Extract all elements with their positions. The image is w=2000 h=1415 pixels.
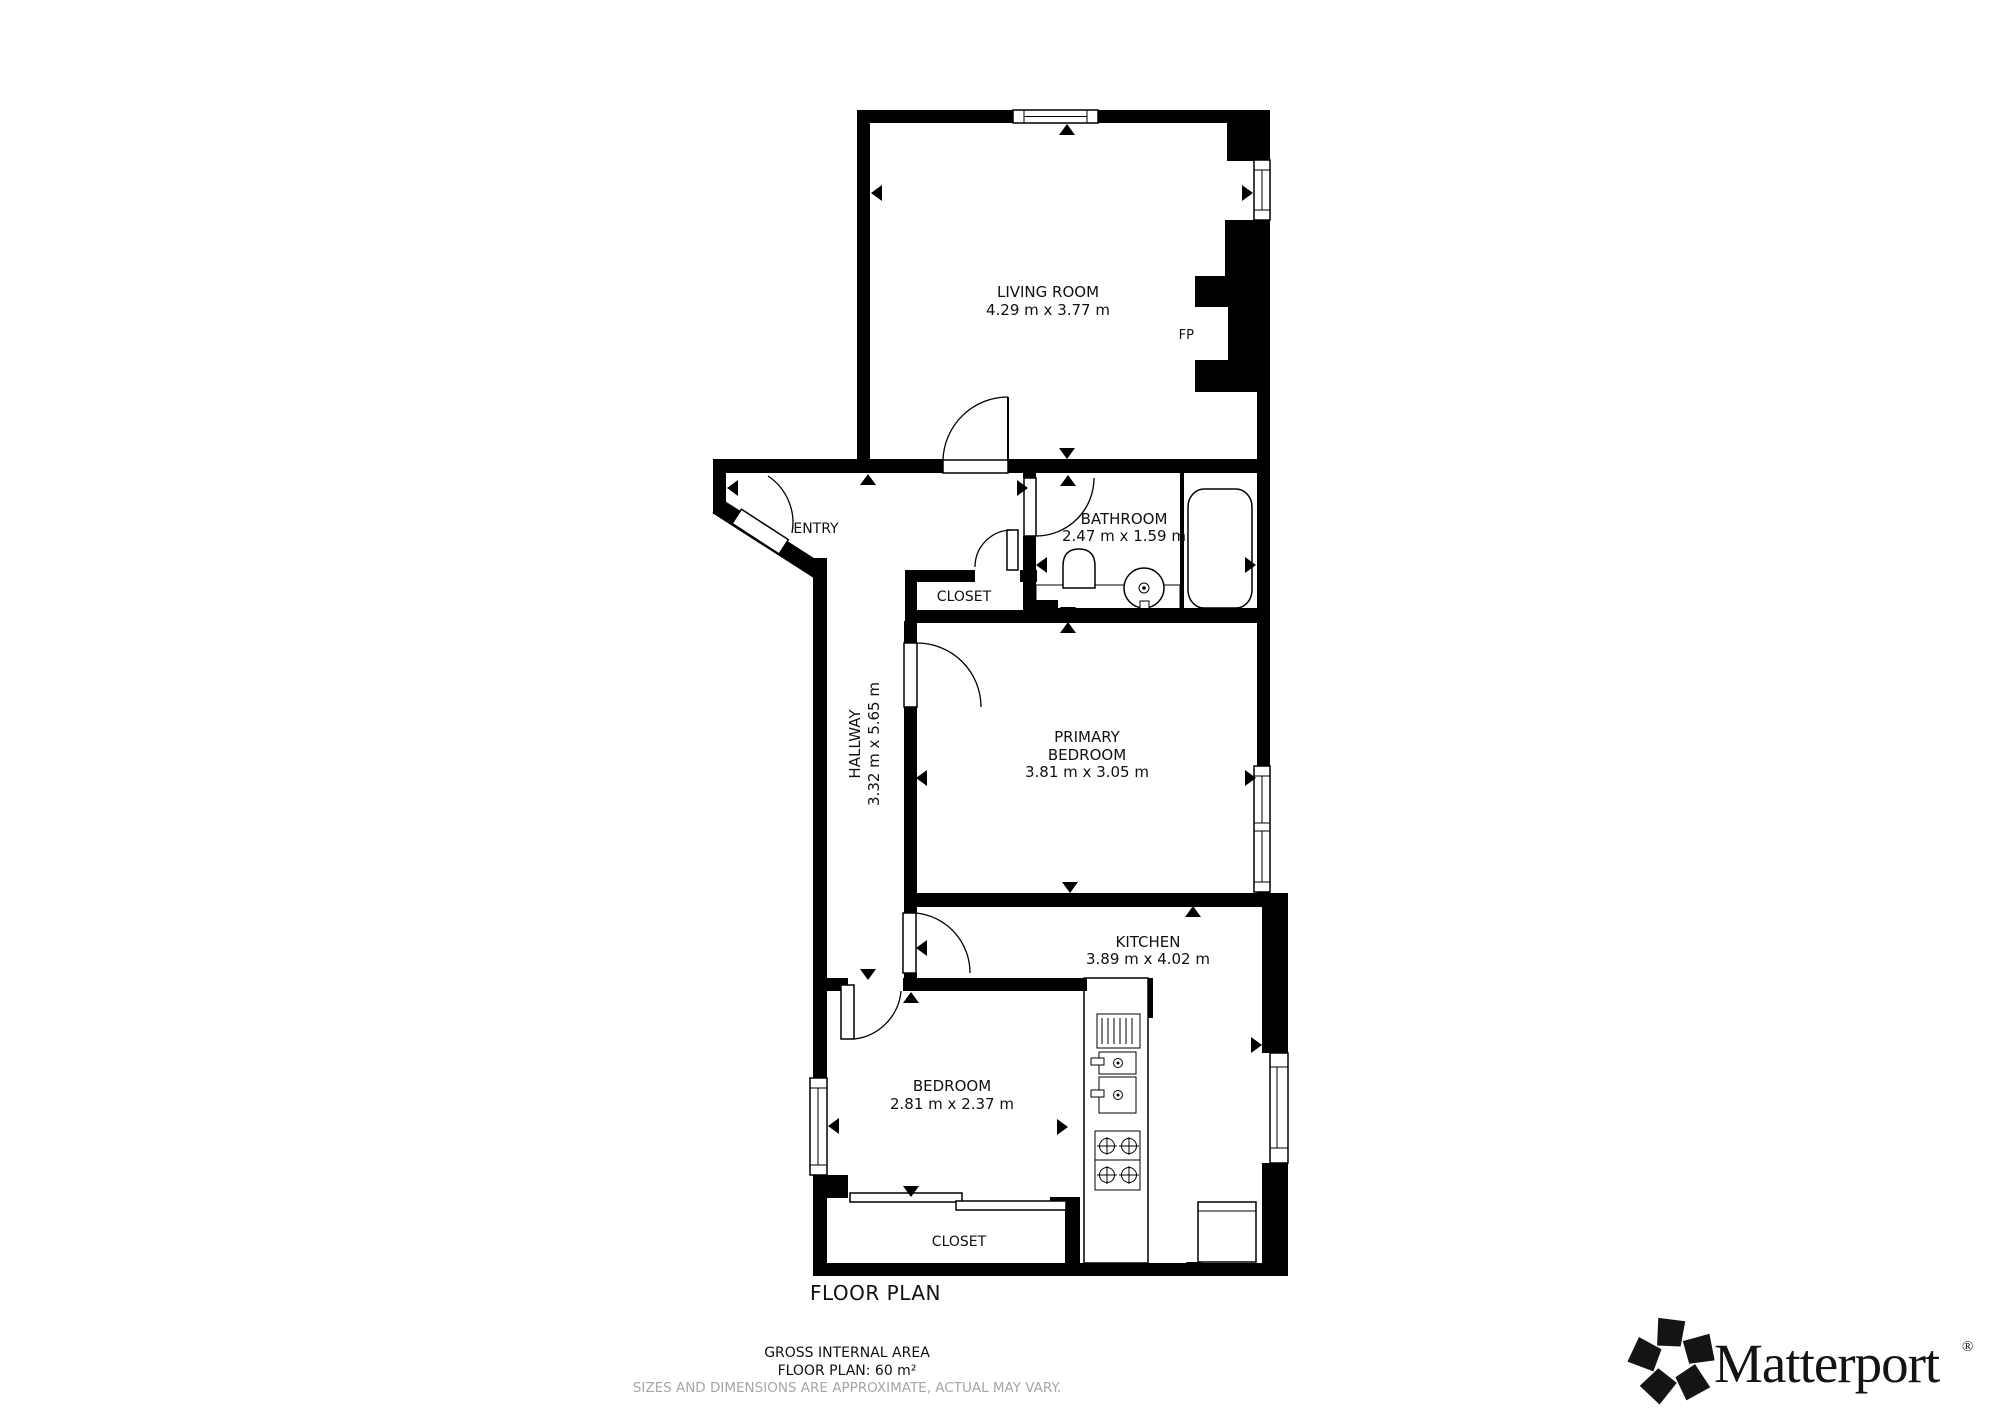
bathroom-dimensions: 2.47 m x 1.59 m: [1062, 527, 1186, 545]
wall: [1023, 459, 1036, 478]
dimension-arrow: [1059, 448, 1075, 459]
closet-lower-label: CLOSET: [932, 1234, 987, 1250]
dimension-arrow: [1036, 557, 1047, 573]
kitchen-drain-dot-lower: [1117, 1094, 1120, 1097]
living-room-door: [943, 397, 1008, 473]
dimension-arrow: [860, 474, 876, 485]
bedroom-door: [841, 985, 901, 1039]
kitchen-faucet-lower: [1091, 1090, 1104, 1097]
sink-drain-dot: [1142, 586, 1146, 590]
wall: [1262, 907, 1288, 1053]
wall: [1148, 978, 1153, 1018]
wall: [1262, 1163, 1288, 1276]
bedroom-window: [810, 1078, 827, 1175]
kitchen-dimensions: 3.89 m x 4.02 m: [1086, 950, 1210, 968]
wall: [1225, 220, 1270, 276]
wall: [904, 707, 917, 913]
dimension-arrow: [916, 770, 927, 786]
toilet: [1063, 549, 1095, 588]
dimension-arrow: [871, 185, 882, 201]
dimension-arrow: [1185, 906, 1201, 917]
wall: [813, 1263, 1288, 1276]
closet-upper-label: CLOSET: [937, 589, 992, 605]
wall: [904, 893, 1288, 907]
matterport-wordmark: Matterport: [1714, 1333, 1940, 1394]
wall: [905, 610, 1037, 623]
dimension-arrow: [916, 940, 927, 956]
dimension-arrow: [1242, 185, 1253, 201]
wall: [1195, 276, 1270, 307]
primary-bedroom-dimensions: 3.81 m x 3.05 m: [1025, 763, 1149, 781]
matterport-pinwheel-icon: [1619, 1308, 1729, 1415]
wall: [857, 110, 870, 473]
hallway-dimensions: 3.32 m x 5.65 m: [865, 682, 883, 806]
wall: [903, 978, 1087, 991]
primary-bedroom-label-line1: PRIMARY: [1054, 728, 1121, 746]
primary-bedroom-label-line2: BEDROOM: [1048, 746, 1126, 764]
dimension-arrow: [828, 1118, 839, 1134]
closet-upper-door: [975, 530, 1018, 570]
living-room-top-window: [1013, 110, 1098, 123]
entry-door: [732, 476, 793, 554]
disclaimer-label: SIZES AND DIMENSIONS ARE APPROXIMATE, AC…: [633, 1380, 1061, 1396]
dimension-arrow: [1059, 124, 1075, 135]
windows: [810, 110, 1288, 1175]
dimension-arrow: [1062, 882, 1078, 893]
dimension-arrow: [860, 969, 876, 980]
closet-lower-sliding-door: [850, 1193, 1066, 1210]
dimension-arrow: [1251, 1037, 1262, 1053]
drainboard: [1097, 1014, 1140, 1048]
floor-plan-area-label: FLOOR PLAN: 60 m²: [778, 1363, 917, 1379]
kitchen-faucet-upper: [1091, 1058, 1104, 1065]
living-room-right-window: [1254, 160, 1270, 220]
wall: [1023, 608, 1270, 623]
wall: [904, 621, 917, 643]
dimension-arrow: [903, 992, 919, 1003]
kitchen-window: [1270, 1053, 1288, 1163]
floor-plan-drawing: LIVING ROOM 4.29 m x 3.77 m ENTRY BATHRO…: [0, 0, 2000, 1415]
bedroom-label: BEDROOM: [913, 1077, 991, 1095]
dimension-arrow: [727, 480, 738, 496]
bedroom-dimensions: 2.81 m x 2.37 m: [890, 1095, 1014, 1113]
matterport-logo: Matterport ®: [1619, 1308, 1973, 1415]
kitchen-label: KITCHEN: [1116, 933, 1181, 951]
fireplace-label: FP: [1179, 328, 1194, 343]
wall: [1008, 459, 1270, 473]
wall: [813, 1175, 848, 1198]
wall: [1227, 123, 1270, 161]
registered-trademark-icon: ®: [1962, 1339, 1973, 1355]
wall: [713, 459, 943, 473]
wall: [1195, 360, 1270, 392]
bathtub: [1188, 489, 1252, 608]
wall: [813, 558, 827, 991]
fixtures: [1036, 489, 1256, 1263]
primary-bedroom-door: [904, 643, 981, 707]
bathroom-label: BATHROOM: [1081, 510, 1168, 528]
gross-internal-area-label: GROSS INTERNAL AREA: [764, 1345, 930, 1361]
entry-label: ENTRY: [793, 521, 839, 537]
primary-bedroom-window: [1254, 766, 1270, 892]
living-room-dimensions: 4.29 m x 3.77 m: [986, 301, 1110, 319]
wall: [813, 978, 827, 1080]
dimension-arrow: [1057, 1119, 1068, 1135]
floor-plan-page: LIVING ROOM 4.29 m x 3.77 m ENTRY BATHRO…: [0, 0, 2000, 1415]
kitchen-door: [903, 913, 970, 973]
wall: [1257, 392, 1270, 768]
floor-plan-title: FLOOR PLAN: [810, 1281, 941, 1305]
dimension-arrow: [1060, 475, 1076, 486]
hallway-label: HALLWAY: [846, 709, 864, 779]
wall: [1228, 307, 1270, 360]
kitchen-drain-dot-upper: [1117, 1062, 1120, 1065]
hallway-label-group: HALLWAY 3.32 m x 5.65 m: [846, 682, 883, 806]
living-room-label: LIVING ROOM: [997, 283, 1099, 301]
dimension-arrow: [1060, 622, 1076, 633]
